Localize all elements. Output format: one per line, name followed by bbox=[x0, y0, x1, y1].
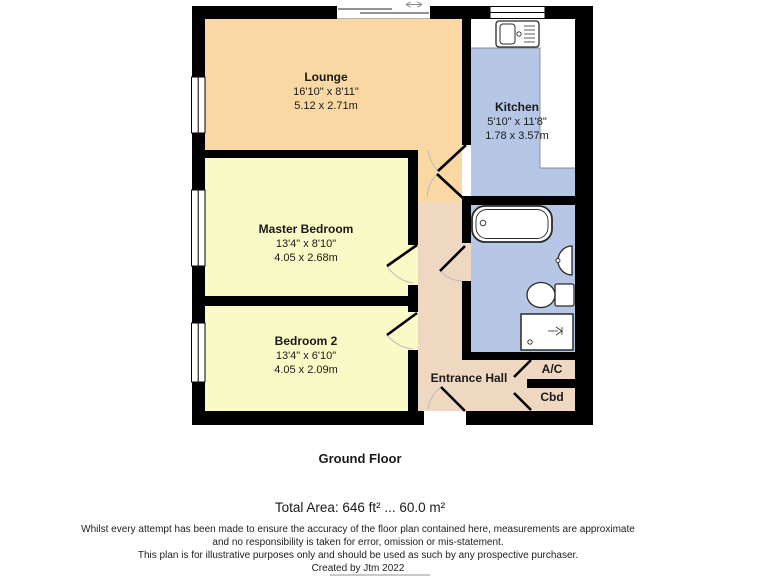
bathtub-icon bbox=[472, 206, 552, 242]
wall-left-3 bbox=[192, 266, 205, 323]
floor-title: Ground Floor bbox=[318, 452, 401, 467]
lounge-window bbox=[192, 77, 206, 133]
wall-closet-divider bbox=[527, 379, 575, 388]
toilet-icon bbox=[527, 283, 574, 308]
entrance-hall-label: Entrance Hall bbox=[431, 371, 508, 386]
lounge-label: Lounge 16'10" x 8'11" 5.12 x 2.71m bbox=[293, 70, 359, 114]
room-dims-ft: 16'10" x 8'11" bbox=[293, 85, 359, 100]
wall-bedrooms-hall-3 bbox=[408, 350, 418, 411]
total-area: Total Area: 646 ft² ... 60.0 m² bbox=[275, 501, 445, 516]
kitchen-window bbox=[490, 7, 545, 19]
wall-left-1 bbox=[192, 6, 205, 77]
master-bedroom-label: Master Bedroom 13'4" x 8'10" 4.05 x 2.68… bbox=[259, 222, 354, 266]
wall-kitchen-bathroom bbox=[462, 196, 575, 205]
ac-closet-label: A/C bbox=[542, 363, 563, 376]
wall-bedrooms-hall-1 bbox=[408, 158, 418, 245]
disclaimer-line-1: Whilst every attempt has been made to en… bbox=[81, 523, 635, 536]
shower-icon bbox=[521, 314, 573, 350]
floorplan-page: Lounge 16'10" x 8'11" 5.12 x 2.71m Kitch… bbox=[0, 0, 768, 576]
wall-bathroom-bottom bbox=[462, 352, 593, 360]
room-name: Master Bedroom bbox=[259, 222, 354, 237]
room-dims-m: 1.78 x 3.57m bbox=[485, 129, 549, 144]
disclaimer: Whilst every attempt has been made to en… bbox=[81, 523, 635, 575]
room-name: Kitchen bbox=[485, 100, 549, 115]
entrance-opening bbox=[424, 411, 466, 425]
wall-top-left bbox=[192, 6, 337, 19]
wall-bathroom-west-1 bbox=[462, 205, 471, 243]
wall-bedrooms-hall-2 bbox=[408, 285, 418, 312]
bedroom2-label: Bedroom 2 13'4" x 6'10" 4.05 x 2.09m bbox=[274, 334, 338, 378]
sliding-door-icon bbox=[337, 6, 430, 19]
disclaimer-credit: Created by Jtm 2022 bbox=[81, 562, 635, 575]
room-dims-ft: 13'4" x 6'10" bbox=[274, 349, 338, 364]
room-dims-m: 4.05 x 2.68m bbox=[259, 251, 354, 266]
floorplan-drawing bbox=[0, 0, 768, 576]
master-bedroom-window bbox=[192, 190, 206, 266]
bedroom2-window bbox=[192, 323, 206, 382]
wall-right bbox=[575, 6, 593, 425]
kitchen-sink-icon bbox=[496, 21, 539, 47]
room-dims-m: 5.12 x 2.71m bbox=[293, 99, 359, 114]
kitchen-floor-bottom bbox=[471, 168, 575, 196]
wall-bedroom-divider bbox=[205, 296, 418, 306]
wall-bottom-right bbox=[466, 411, 593, 425]
room-dims-ft: 13'4" x 8'10" bbox=[259, 237, 354, 252]
wall-lounge-master bbox=[205, 150, 418, 158]
disclaimer-line-2: and no responsibility is taken for error… bbox=[81, 536, 635, 549]
disclaimer-line-3: This plan is for illustrative purposes o… bbox=[81, 549, 635, 562]
room-dims-m: 4.05 x 2.09m bbox=[274, 363, 338, 378]
room-name: Bedroom 2 bbox=[274, 334, 338, 349]
wall-lounge-kitchen bbox=[462, 19, 471, 145]
wall-bathroom-west-2 bbox=[462, 281, 471, 352]
kitchen-label: Kitchen 5'10" x 11'8" 1.78 x 3.57m bbox=[485, 100, 549, 144]
cbd-closet-label: Cbd bbox=[540, 391, 563, 404]
room-name: Lounge bbox=[293, 70, 359, 85]
wall-bottom-left bbox=[192, 411, 424, 425]
wall-top-mid bbox=[430, 6, 490, 19]
wall-left-2 bbox=[192, 133, 205, 190]
room-dims-ft: 5'10" x 11'8" bbox=[485, 115, 549, 130]
